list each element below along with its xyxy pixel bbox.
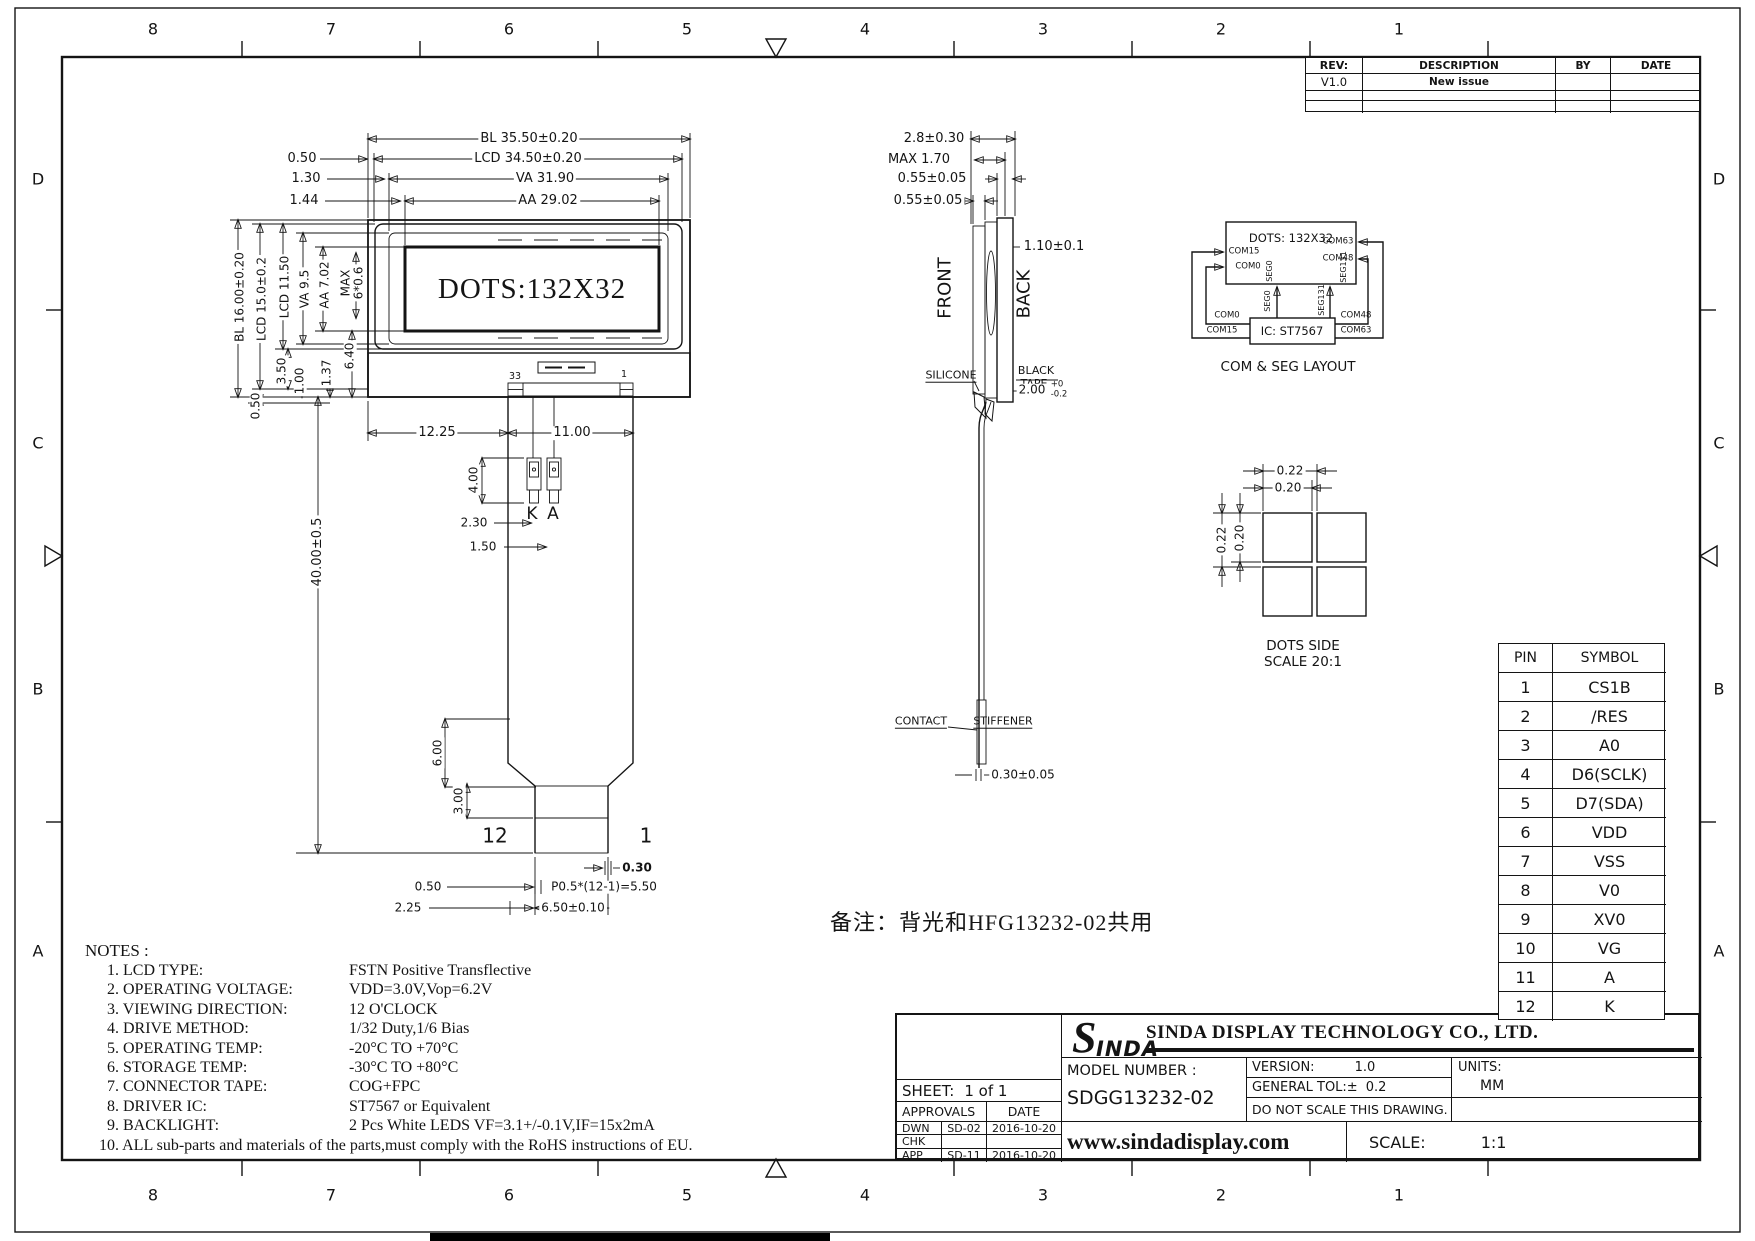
- drawing-sheet: 8 7 6 5 4 3 2 1 8 7 6 5 4 3 2 1 D C B A …: [0, 0, 1755, 1241]
- dim-150: 1.50: [468, 541, 499, 554]
- description-value: New issue: [1363, 74, 1556, 91]
- pin-number: 11: [1499, 963, 1553, 992]
- dim-225: 2.25: [393, 902, 424, 915]
- website-cell: www.sindadisplay.com: [1062, 1122, 1347, 1162]
- notes-block: NOTES : 1. LCD TYPE:FSTN Positive Transf…: [85, 941, 725, 1155]
- model-number-value: SDGG13232-02: [1067, 1087, 1215, 1109]
- by-header: BY: [1556, 58, 1611, 74]
- pin-number: 12: [1499, 992, 1553, 1021]
- dim-200-tol-up: +0: [1051, 381, 1064, 390]
- dim-050-bottom: 0.50: [250, 391, 263, 422]
- wire-com15: COM15: [1207, 327, 1238, 336]
- pin-symbol: VSS: [1553, 847, 1666, 876]
- dim-600: 6.00: [432, 738, 445, 769]
- pin-symbol: VDD: [1553, 818, 1666, 847]
- units-cell: UNITS: MM: [1452, 1058, 1702, 1098]
- pin-header: PIN: [1499, 644, 1553, 673]
- dim-va-width: VA 31.90: [514, 172, 576, 186]
- app-by: SD-11: [942, 1149, 987, 1162]
- comseg-com15: COM15: [1229, 248, 1260, 257]
- note-item: 10. ALL sub-parts and materials of the p…: [85, 1136, 725, 1155]
- date-value: [1611, 74, 1701, 91]
- dim-bl-height: BL 16.00±0.20: [234, 250, 247, 344]
- zone-col: 8: [146, 1188, 160, 1205]
- version-value: 1.0: [1355, 1060, 1376, 1075]
- fpc-pin-1: 1: [640, 826, 653, 847]
- pin-number: 2: [1499, 702, 1553, 731]
- wire-com0: COM0: [1214, 312, 1239, 321]
- zone-col: 2: [1214, 22, 1228, 39]
- note-item: 8. DRIVER IC:ST7567 or Equivalent: [85, 1097, 725, 1116]
- dim-1225: 12.25: [416, 426, 457, 440]
- note-item: 3. VIEWING DIRECTION:12 O'CLOCK: [85, 1000, 725, 1019]
- zone-col: 6: [502, 22, 516, 39]
- pin-symbol: A: [1553, 963, 1666, 992]
- pin-symbol: CS1B: [1553, 673, 1666, 702]
- fpc-pin-12: 12: [482, 826, 507, 847]
- dim-640: 6.40: [344, 341, 357, 372]
- zone-col: 1: [1392, 1188, 1406, 1205]
- approvals-header: APPROVALS: [897, 1102, 987, 1122]
- pin-number: 4: [1499, 760, 1553, 789]
- comseg-dots-title: DOTS: 132X32: [1249, 232, 1333, 244]
- dim-lcd-width: LCD 34.50±0.20: [472, 152, 584, 166]
- zone-col: 7: [324, 1188, 338, 1205]
- note-item: 9. BACKLIGHT:2 Pcs White LEDS VF=3.1+/-0…: [85, 1116, 725, 1135]
- bottom-artifact: [430, 1233, 830, 1241]
- silicone-label: SILICONE: [925, 370, 976, 383]
- comseg-com63: COM63: [1323, 238, 1354, 247]
- pin-number: 1: [1499, 673, 1553, 702]
- zone-col: 5: [680, 1188, 694, 1205]
- dwn-label: DWN: [897, 1122, 942, 1135]
- dim-200: 2.00: [1017, 384, 1048, 397]
- note-item: 5. OPERATING TEMP:-20°C TO +70°C: [85, 1039, 725, 1058]
- dots-side-caption-2: SCALE 20:1: [1264, 655, 1342, 669]
- pin-table: PIN SYMBOL 1 CS1B 2 /RES 3 A0 4 D6(SCLK)…: [1498, 643, 1665, 1020]
- model-cell: MODEL NUMBER : SDGG13232-02: [1062, 1058, 1247, 1122]
- dim-300: 3.00: [453, 786, 466, 817]
- dim-055-b: 0.55±0.05: [892, 194, 965, 208]
- notes-title: NOTES :: [85, 941, 725, 961]
- zone-col: 5: [680, 22, 694, 39]
- zone-col: 3: [1036, 22, 1050, 39]
- sinda-logo-s: S: [1072, 1012, 1096, 1063]
- pin-symbol: D7(SDA): [1553, 789, 1666, 818]
- dwn-date: 2016-10-20: [987, 1122, 1062, 1135]
- black-tape-label-1: BLACK: [1018, 365, 1054, 377]
- cog-pin-33: 33: [509, 372, 521, 382]
- note-item: 6. STORAGE TEMP:-30°C TO +80°C: [85, 1058, 725, 1077]
- note-item: 1. LCD TYPE:FSTN Positive Transflective: [85, 961, 725, 980]
- pin-symbol: VG: [1553, 934, 1666, 963]
- dim-offset-144: 1.44: [288, 194, 321, 208]
- zone-row: D: [1711, 172, 1727, 189]
- pin-number: 6: [1499, 818, 1553, 847]
- scale-value: 1:1: [1481, 1133, 1507, 1152]
- dots-dim-022-v: 0.22: [1216, 525, 1229, 556]
- units-value: MM: [1480, 1078, 1504, 1094]
- dim-lcd2-height: LCD 11.50: [279, 254, 292, 320]
- company-name: SINDA DISPLAY TECHNOLOGY CO., LTD.: [1146, 1022, 1538, 1044]
- description-header: DESCRIPTION: [1363, 58, 1556, 74]
- dim-max-170: MAX 1.70: [886, 153, 952, 167]
- dim-100: 1.00: [294, 366, 307, 397]
- comseg-seg0: SEG0: [1266, 260, 1274, 281]
- led-cathode-label: K: [526, 506, 537, 524]
- cog-pin-1: 1: [621, 370, 627, 380]
- pin-number: 5: [1499, 789, 1553, 818]
- dim-650: 6.50±0.10: [539, 902, 607, 915]
- symbol-header: SYMBOL: [1553, 644, 1666, 673]
- sheet-cell: SHEET:1 of 1: [897, 1080, 1062, 1102]
- dim-137: 1.37: [321, 358, 334, 389]
- contact-label: CONTACT: [895, 716, 947, 729]
- pin-number: 7: [1499, 847, 1553, 876]
- zone-col: 8: [146, 22, 160, 39]
- website-text: www.sindadisplay.com: [1067, 1129, 1289, 1155]
- rev-header: REV:: [1306, 58, 1363, 74]
- zone-col: 1: [1392, 22, 1406, 39]
- zone-col: 3: [1036, 1188, 1050, 1205]
- zone-row: B: [31, 682, 46, 699]
- zone-col: 4: [858, 1188, 872, 1205]
- dim-4000: 40.00±0.5: [311, 516, 325, 589]
- date-header: DATE: [1611, 58, 1701, 74]
- zone-col: 6: [502, 1188, 516, 1205]
- pin-number: 8: [1499, 876, 1553, 905]
- pin-number: 3: [1499, 731, 1553, 760]
- pin-symbol: XV0: [1553, 905, 1666, 934]
- tolerance-cell: GENERAL TOL:± 0.2: [1247, 1078, 1452, 1098]
- wire-seg131: SEG131: [1318, 284, 1326, 316]
- dim-aa-height: AA 7.02: [319, 259, 332, 310]
- pin-symbol: D6(SCLK): [1553, 760, 1666, 789]
- dwn-by: SD-02: [942, 1122, 987, 1135]
- dots-dim-020-v: 0.20: [1234, 523, 1247, 554]
- no-scale-cell: DO NOT SCALE THIS DRAWING.: [1247, 1098, 1452, 1122]
- pin-symbol: A0: [1553, 731, 1666, 760]
- wire-com63: COM63: [1341, 327, 1372, 336]
- comseg-ic-label: IC: ST7567: [1261, 325, 1324, 337]
- comseg-caption: COM & SEG LAYOUT: [1221, 360, 1356, 374]
- dim-max-line1: MAX: [340, 268, 353, 299]
- dim-055-a: 0.55±0.05: [896, 172, 969, 186]
- dim-aa-width: AA 29.02: [516, 194, 580, 208]
- wire-com48: COM48: [1341, 312, 1372, 321]
- note-item: 7. CONNECTOR TAPE:COG+FPC: [85, 1077, 725, 1096]
- dim-pitch-formula: P0.5*(12-1)=5.50: [549, 881, 659, 894]
- dim-offset-130: 1.30: [290, 172, 323, 186]
- dim-28: 2.8±0.30: [902, 132, 967, 146]
- zone-row: C: [30, 436, 45, 453]
- comseg-com0: COM0: [1235, 263, 1260, 272]
- dim-400: 4.00: [468, 465, 481, 496]
- note-item: 2. OPERATING VOLTAGE:VDD=3.0V,Vop=6.2V: [85, 980, 725, 999]
- company-underline: [1146, 1048, 1694, 1052]
- pin-number: 10: [1499, 934, 1553, 963]
- scale-cell: SCALE: 1:1: [1347, 1122, 1702, 1162]
- pin-symbol: K: [1553, 992, 1666, 1021]
- dots-dim-020-h: 0.20: [1273, 482, 1304, 495]
- dots-side-caption-1: DOTS SIDE: [1266, 639, 1340, 653]
- comseg-seg131: SEG131: [1340, 251, 1348, 283]
- revision-table: REV: DESCRIPTION BY DATE V1.0 New issue: [1305, 57, 1700, 112]
- display-dots-text: DOTS:132X32: [436, 274, 628, 304]
- version-cell: VERSION: 1.0: [1247, 1058, 1452, 1078]
- remark-text: 备注：背光和HFG13232-02共用: [830, 905, 1153, 937]
- wire-seg0: SEG0: [1264, 290, 1272, 311]
- pin-symbol: /RES: [1553, 702, 1666, 731]
- dim-050-pitch: 0.50: [413, 881, 444, 894]
- dim-230: 2.30: [459, 517, 490, 530]
- pin-number: 9: [1499, 905, 1553, 934]
- pin-symbol: V0: [1553, 876, 1666, 905]
- note-item: 4. DRIVE METHOD:1/32 Duty,1/6 Bias: [85, 1019, 725, 1038]
- led-anode-label: A: [547, 506, 559, 524]
- dim-offset-050: 0.50: [286, 152, 319, 166]
- dim-030-fpc: 0.30: [620, 862, 654, 875]
- dim-110: 1.10±0.1: [1022, 240, 1087, 254]
- zone-row: A: [1712, 944, 1727, 961]
- dim-350: 3.50: [276, 356, 289, 387]
- app-label: APP: [897, 1149, 942, 1162]
- dots-dim-022-h: 0.22: [1275, 465, 1306, 478]
- zone-col: 7: [324, 22, 338, 39]
- front-label: FRONT: [937, 257, 956, 319]
- dim-va-height: VA 9.5: [299, 268, 312, 311]
- dim-200-tol-dn: -0.2: [1051, 391, 1068, 400]
- projection-symbol-cell: [897, 1015, 1062, 1080]
- zone-col: 2: [1214, 1188, 1228, 1205]
- zone-col: 4: [858, 22, 872, 39]
- back-label: BACK: [1016, 270, 1035, 319]
- dim-lcd-height: LCD 15.0±0.2: [256, 255, 269, 343]
- dim-1100: 11.00: [551, 426, 592, 440]
- dim-bl-width: BL 35.50±0.20: [478, 132, 579, 146]
- zone-row: B: [1712, 682, 1727, 699]
- chk-label: CHK: [897, 1135, 942, 1148]
- stiffener-label: STIFFENER: [973, 716, 1032, 729]
- dim-030-tail: 0.30±0.05: [989, 769, 1057, 782]
- dim-max-line2: 6*0.6: [353, 265, 366, 302]
- zone-row: D: [30, 172, 46, 189]
- date-header-tb: DATE: [987, 1102, 1062, 1122]
- zone-row: A: [31, 944, 46, 961]
- model-number-label: MODEL NUMBER :: [1067, 1063, 1197, 1079]
- rev-value: V1.0: [1306, 74, 1363, 91]
- app-date: 2016-10-20: [987, 1149, 1062, 1162]
- by-value: [1556, 74, 1611, 91]
- zone-row: C: [1711, 436, 1726, 453]
